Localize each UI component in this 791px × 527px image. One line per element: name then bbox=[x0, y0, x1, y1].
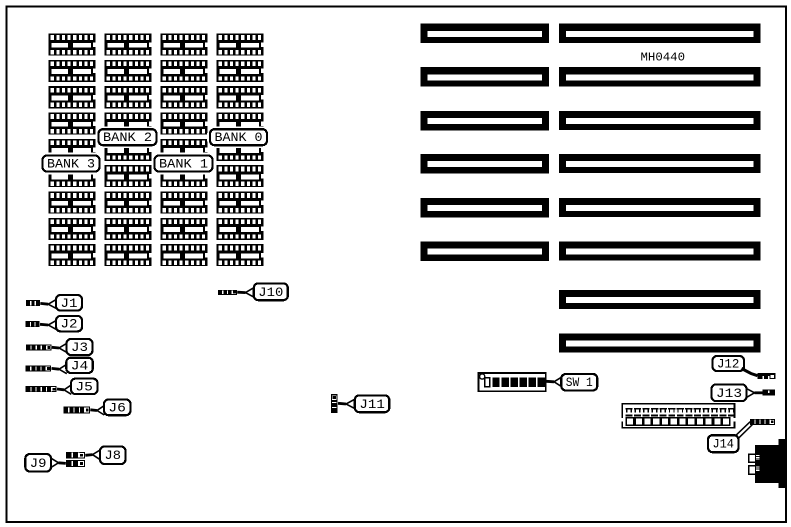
svg-text:BANK 2: BANK 2 bbox=[103, 131, 152, 145]
svg-text:BANK 3: BANK 3 bbox=[47, 158, 95, 172]
svg-text:J4: J4 bbox=[71, 359, 89, 373]
svg-text:J2: J2 bbox=[61, 318, 78, 332]
svg-text:J14: J14 bbox=[712, 438, 734, 452]
svg-text:J5: J5 bbox=[75, 380, 93, 394]
svg-text:J8: J8 bbox=[105, 449, 122, 463]
svg-text:J13: J13 bbox=[716, 387, 742, 401]
svg-text:J12: J12 bbox=[717, 358, 740, 372]
svg-text:BANK 1: BANK 1 bbox=[159, 158, 208, 172]
svg-text:MH0440: MH0440 bbox=[641, 51, 686, 65]
svg-text:BANK 0: BANK 0 bbox=[215, 131, 263, 145]
svg-text:SW 1: SW 1 bbox=[566, 376, 593, 390]
svg-text:J3: J3 bbox=[71, 341, 88, 355]
svg-text:J6: J6 bbox=[108, 401, 126, 415]
svg-text:J9: J9 bbox=[30, 457, 47, 471]
svg-text:J10: J10 bbox=[258, 286, 283, 300]
svg-text:J1: J1 bbox=[61, 297, 78, 311]
svg-text:J11: J11 bbox=[359, 398, 385, 412]
